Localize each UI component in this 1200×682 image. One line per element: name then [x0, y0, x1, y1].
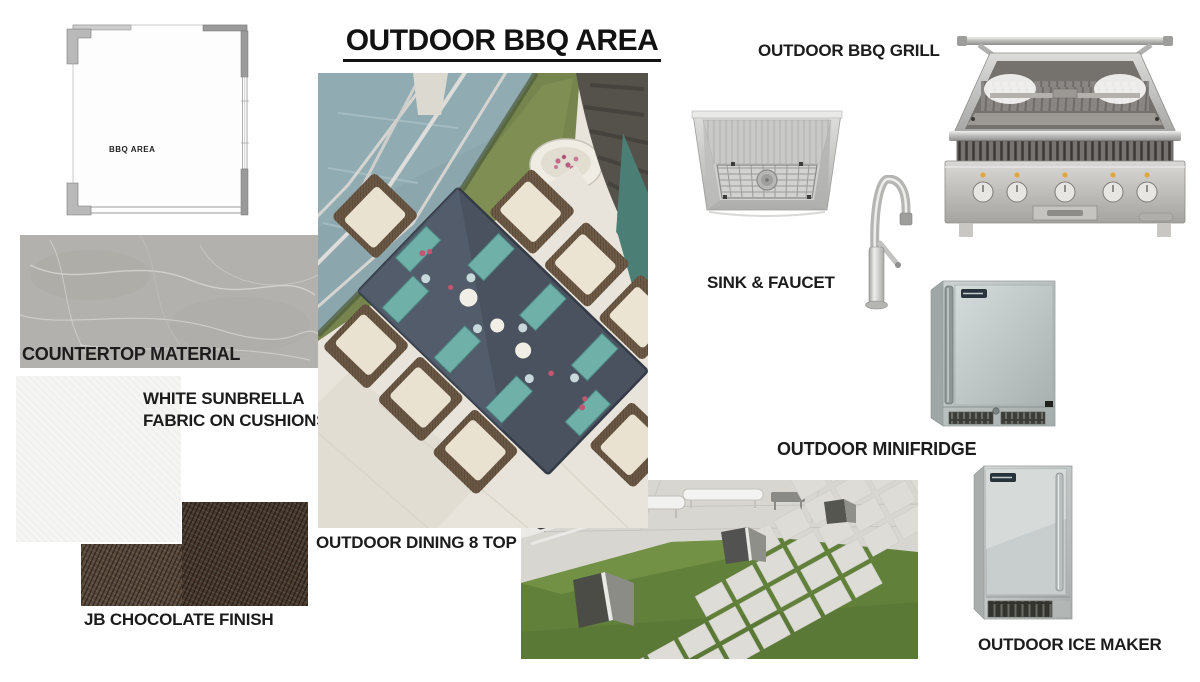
dining-photo — [318, 73, 648, 528]
wicker-swatch-dark — [182, 502, 308, 606]
page-title: OUTDOOR BBQ AREA — [322, 24, 682, 62]
fabric-label: WHITE SUNBRELLA FABRIC ON CUSHIONS — [143, 388, 327, 432]
minifridge-label: OUTDOOR MINIFRIDGE — [777, 440, 976, 460]
ice-maker-label: OUTDOOR ICE MAKER — [978, 636, 1162, 655]
faucet-photo — [848, 175, 914, 311]
floor-plan-room-label: BBQ AREA — [109, 145, 155, 154]
dining-label: OUTDOOR DINING 8 TOP — [316, 534, 517, 553]
sink-photo — [687, 108, 847, 240]
sink-label: SINK & FAUCET — [707, 274, 835, 293]
grill-photo — [935, 27, 1195, 243]
floor-plan: BBQ AREA — [65, 15, 255, 225]
grill-label: OUTDOOR BBQ GRILL — [758, 42, 940, 61]
minifridge-photo — [925, 276, 1061, 432]
fabric-label-line2: FABRIC ON CUSHIONS — [143, 411, 327, 430]
mood-board: OUTDOOR BBQ AREA BBQ AREA — [0, 0, 1200, 682]
ice-maker-photo — [970, 459, 1076, 629]
wicker-label: JB CHOCOLATE FINISH — [84, 611, 274, 630]
wicker-swatch-light — [81, 544, 182, 606]
page-title-text: OUTDOOR BBQ AREA — [343, 24, 662, 62]
fabric-label-line1: WHITE SUNBRELLA — [143, 389, 304, 408]
countertop-label: COUNTERTOP MATERIAL — [22, 345, 240, 365]
